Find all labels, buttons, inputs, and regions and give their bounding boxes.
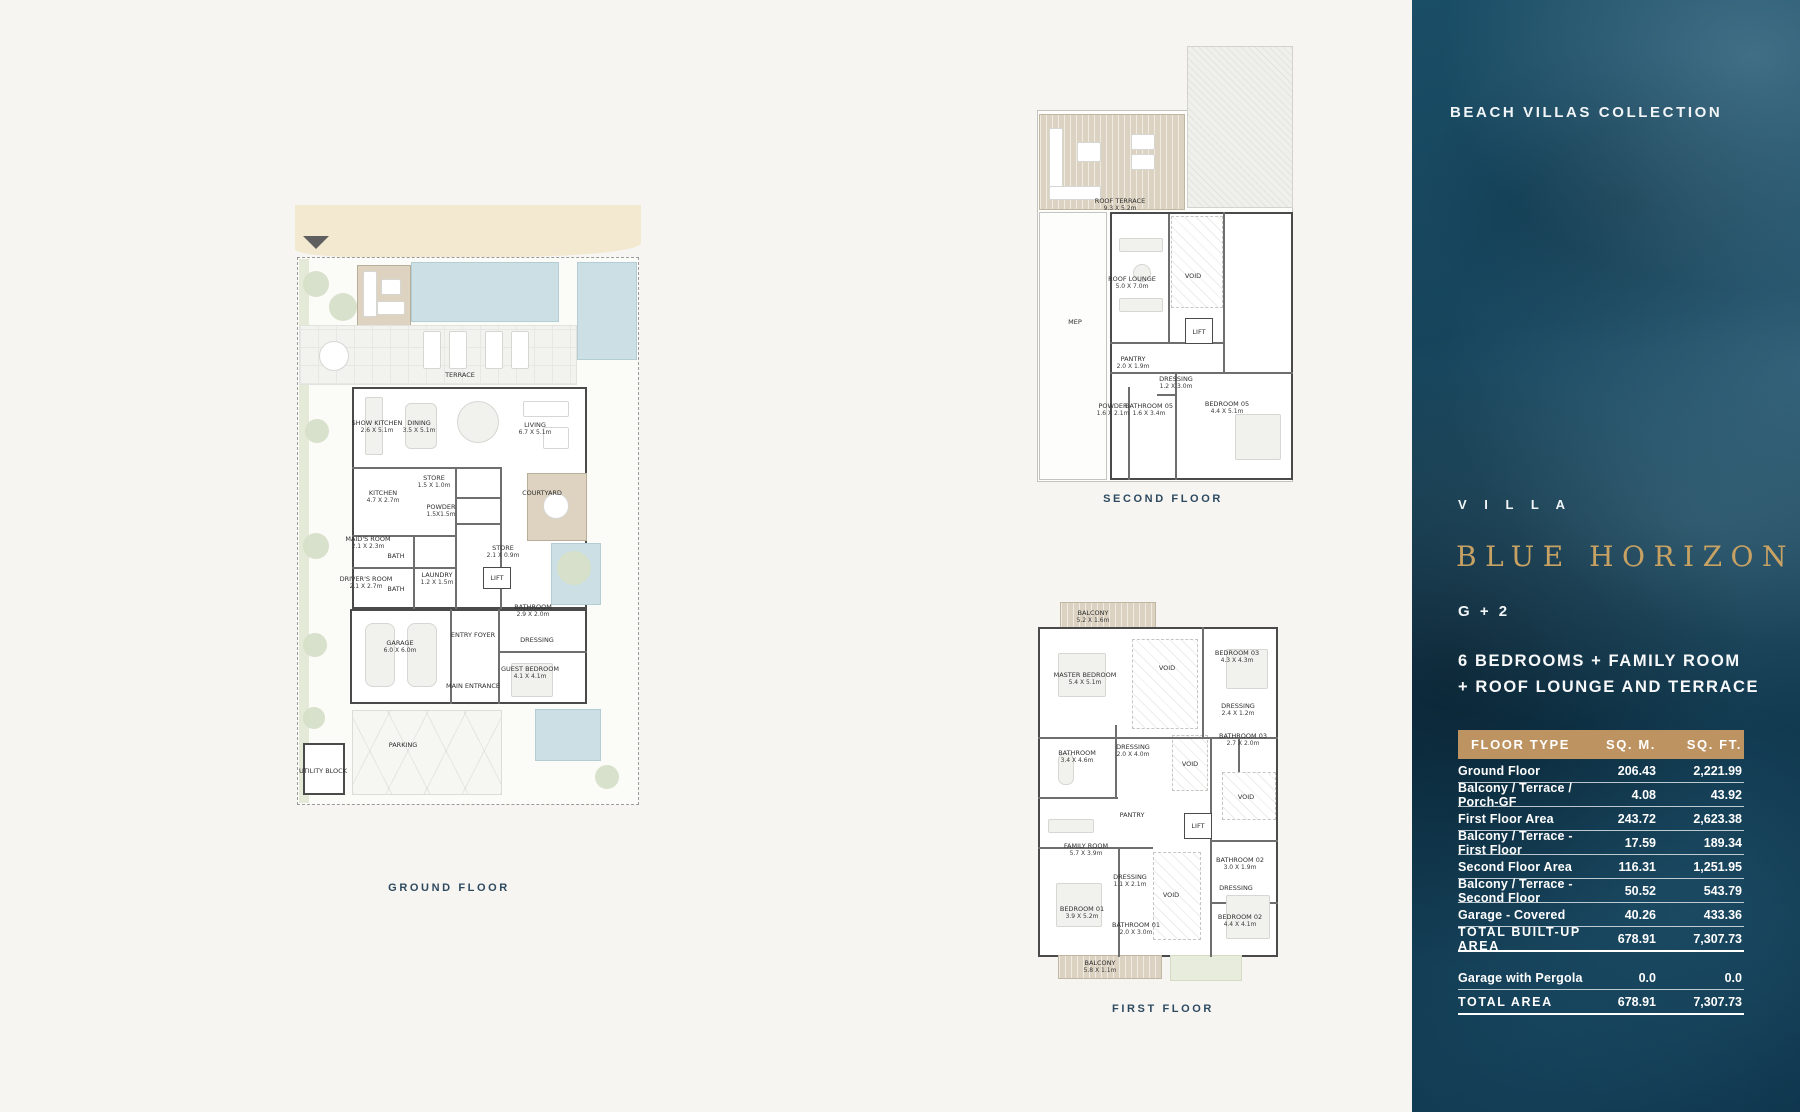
gravel-roof — [1187, 46, 1293, 208]
table-cell: 40.26 — [1586, 908, 1656, 922]
header-sqft: SQ. FT. — [1656, 737, 1744, 752]
room-label: FAMILY ROOM5.7 X 3.9m — [1064, 842, 1108, 858]
room-label: LIVING6.7 X 5.1m — [519, 421, 552, 437]
sun-lounger — [511, 331, 529, 369]
room-label: GUEST BEDROOM4.1 X 4.1m — [501, 665, 559, 681]
wall — [1210, 737, 1212, 957]
void-area — [1171, 216, 1223, 308]
rug — [457, 401, 499, 443]
tree — [305, 419, 329, 443]
table-row: Garage with Pergola0.00.0 — [1458, 966, 1744, 990]
room-label: LIFT — [490, 574, 503, 582]
terrace-chair — [1131, 154, 1155, 170]
beach-access-marker — [303, 236, 329, 249]
wall — [413, 535, 415, 609]
villa-name: BLUE HORIZON — [1456, 540, 1795, 573]
wall — [1118, 847, 1120, 957]
table-cell: Garage - Covered — [1458, 908, 1586, 922]
room-label: COURTYARD — [522, 489, 562, 497]
room-label: PARKING — [389, 741, 418, 749]
room-label: BEDROOM 054.4 X 5.1m — [1205, 400, 1249, 416]
parking-area — [352, 710, 502, 795]
room-label: DRESSING2.0 X 4.0m — [1116, 743, 1150, 759]
swimming-pool — [577, 262, 637, 360]
car — [407, 623, 437, 687]
sun-lounger — [485, 331, 503, 369]
wall — [1210, 840, 1278, 842]
first-floor-plan: BALCONY5.2 X 1.6m MASTER BEDROOM5.4 X 5.… — [1020, 557, 1296, 981]
room-label: STORE1.5 X 1.0m — [418, 474, 451, 490]
void-area — [1132, 639, 1198, 729]
bed — [1235, 414, 1281, 460]
garden-terrace — [1170, 955, 1242, 981]
header-floor-type: FLOOR TYPE — [1458, 737, 1586, 752]
cabana-table — [381, 279, 401, 295]
room-label: DRESSING — [1219, 884, 1253, 892]
table-cell: Balcony / Terrace - First Floor — [1458, 829, 1586, 857]
tree — [303, 707, 325, 729]
room-label: DRESSING2.4 X 1.2m — [1221, 702, 1255, 718]
room-label: UTILITY BLOCK — [299, 767, 347, 775]
table-cell: TOTAL AREA — [1458, 995, 1586, 1009]
sun-lounger — [449, 331, 467, 369]
room-label: VOID — [1159, 664, 1175, 672]
table-cell: First Floor Area — [1458, 812, 1586, 826]
tree — [595, 765, 619, 789]
table-cell: Balcony / Terrace - Second Floor — [1458, 877, 1586, 905]
storeys-label: G + 2 — [1458, 603, 1510, 620]
wall — [1038, 797, 1118, 799]
room-label: BEDROOM 013.9 X 5.2m — [1060, 905, 1104, 921]
area-table-header: FLOOR TYPE SQ. M. SQ. FT. — [1458, 730, 1744, 759]
area-table: FLOOR TYPE SQ. M. SQ. FT. Ground Floor20… — [1458, 730, 1744, 1015]
room-label: GARAGE6.0 X 6.0m — [384, 639, 417, 655]
ground-floor-caption: GROUND FLOOR — [388, 882, 510, 894]
room-label: BATH — [387, 585, 404, 593]
table-cell: 243.72 — [1586, 812, 1656, 826]
table-cell: 543.79 — [1656, 884, 1744, 898]
lounge-sofa — [1119, 238, 1163, 252]
room-label: BATH — [387, 552, 404, 560]
room-label: MEP — [1068, 318, 1082, 326]
room-label: SHOW KITCHEN2.6 X 5.1m — [352, 419, 403, 435]
table-cell: 2,221.99 — [1656, 764, 1744, 778]
room-label: VOID — [1163, 891, 1179, 899]
wall — [1110, 372, 1293, 374]
room-label: ROOF TERRACE9.3 X 5.2m — [1095, 197, 1145, 213]
room-label: LAUNDRY1.2 X 1.5m — [421, 571, 454, 587]
villa-description: 6 BEDROOMS + FAMILY ROOM + ROOF LOUNGE A… — [1458, 648, 1759, 700]
table-cell: 678.91 — [1586, 995, 1656, 1009]
terrace-table — [1077, 142, 1101, 162]
outdoor-table — [319, 341, 349, 371]
wall — [352, 467, 502, 469]
room-label: ROOF LOUNGE5.0 X 7.0m — [1108, 275, 1156, 291]
room-label: VOID — [1185, 272, 1201, 280]
room-label: LIFT — [1191, 822, 1204, 830]
table-cell: 17.59 — [1586, 836, 1656, 850]
room-label: MAID'S ROOM2.1 X 2.3m — [345, 535, 390, 551]
table-cell: Second Floor Area — [1458, 860, 1586, 874]
table-cell: 1,251.95 — [1656, 860, 1744, 874]
room-label: TERRACE — [445, 371, 475, 379]
room-label: ENTRY FOYER — [451, 631, 495, 639]
room-label: POWDER1.5X1.5m — [426, 503, 455, 519]
room-label: DRESSING1.2 X 3.0m — [1159, 375, 1193, 391]
wall — [457, 523, 502, 525]
room-label: KITCHEN4.7 X 2.7m — [367, 489, 400, 505]
room-label: VOID — [1238, 793, 1254, 801]
first-floor-caption: FIRST FLOOR — [1112, 1003, 1214, 1015]
table-cell: 7,307.73 — [1656, 932, 1744, 946]
room-label: PANTRY2.0 X 1.9m — [1117, 355, 1150, 371]
room-label: BATHROOM 012.0 X 3.0m — [1112, 921, 1160, 937]
table-cell: 678.91 — [1586, 932, 1656, 946]
tree — [303, 533, 329, 559]
second-floor-plan: ROOF TERRACE9.3 X 5.2m ROOF LOUNGE5.0 X … — [1035, 42, 1297, 486]
sofa — [1048, 819, 1094, 833]
table-cell: 116.31 — [1586, 860, 1656, 874]
wall — [455, 467, 457, 609]
table-cell: Balcony / Terrace / Porch-GF — [1458, 781, 1586, 809]
room-label: BATHROOM3.4 X 4.6m — [1058, 749, 1096, 765]
table-cell: 206.43 — [1586, 764, 1656, 778]
table-row: Balcony / Terrace - First Floor17.59189.… — [1458, 831, 1744, 855]
wall — [1115, 725, 1117, 797]
area-table-body: Ground Floor206.432,221.99Balcony / Terr… — [1458, 759, 1744, 1015]
room-label: PANTRY — [1120, 811, 1145, 819]
table-cell: 7,307.73 — [1656, 995, 1744, 1009]
room-label: BATHROOM 032.7 X 2.0m — [1219, 732, 1267, 748]
brochure-page: { "sidebar": { "collection": "BEACH VILL… — [0, 0, 1800, 1112]
collection-title: BEACH VILLAS COLLECTION — [1450, 104, 1722, 121]
table-row: Garage - Covered40.26433.36 — [1458, 903, 1744, 927]
wall — [1223, 212, 1225, 372]
info-sidebar: BEACH VILLAS COLLECTION V I L L A BLUE H… — [1412, 0, 1800, 1112]
table-row: First Floor Area243.722,623.38 — [1458, 807, 1744, 831]
table-row: TOTAL BUILT-UP AREA678.917,307.73 — [1458, 927, 1744, 952]
table-cell: 0.0 — [1586, 971, 1656, 985]
wall — [352, 567, 457, 569]
table-cell: 50.52 — [1586, 884, 1656, 898]
table-cell: 43.92 — [1656, 788, 1744, 802]
sofa — [523, 401, 569, 417]
terrace-sofa — [1049, 128, 1063, 188]
swimming-pool — [411, 262, 559, 322]
cabana-sofa — [377, 301, 405, 315]
room-label: BATHROOM 023.0 X 1.9m — [1216, 856, 1264, 872]
ground-floor-plan: TERRACE SHOW KITCHEN2.6 X 5.1m DINING3.5… — [295, 205, 641, 817]
room-label: MAIN ENTRANCE — [446, 682, 500, 690]
table-cell: 4.08 — [1586, 788, 1656, 802]
wall — [1128, 387, 1130, 480]
tree — [557, 551, 591, 585]
car — [365, 623, 395, 687]
table-cell: Ground Floor — [1458, 764, 1586, 778]
room-label: BATHROOM2.9 X 2.0m — [514, 603, 552, 619]
table-row: Second Floor Area116.311,251.95 — [1458, 855, 1744, 879]
room-label: POWDER1.6 X 2.1m — [1097, 402, 1130, 418]
table-row: TOTAL AREA678.917,307.73 — [1458, 990, 1744, 1015]
table-row: Balcony / Terrace / Porch-GF4.0843.92 — [1458, 783, 1744, 807]
terrace-sofa — [1049, 186, 1101, 200]
table-row: Ground Floor206.432,221.99 — [1458, 759, 1744, 783]
description-line-2: + ROOF LOUNGE AND TERRACE — [1458, 674, 1759, 700]
room-label: VOID — [1182, 760, 1198, 768]
room-label: BEDROOM 034.3 X 4.3m — [1215, 649, 1259, 665]
room-label: BALCONY5.2 X 1.6m — [1077, 609, 1110, 625]
second-floor-caption: SECOND FLOOR — [1103, 493, 1223, 505]
table-cell: 0.0 — [1656, 971, 1744, 985]
beach-sand — [295, 205, 641, 257]
wall — [498, 651, 587, 653]
mep-zone — [1039, 212, 1107, 480]
cabana-sofa — [363, 271, 377, 317]
room-label: STORE2.1 X 0.9m — [487, 544, 520, 560]
table-cell: TOTAL BUILT-UP AREA — [1458, 925, 1586, 953]
tree — [303, 271, 329, 297]
sun-lounger — [423, 331, 441, 369]
table-cell: 189.34 — [1656, 836, 1744, 850]
tree — [303, 633, 327, 657]
lounge-sofa — [1119, 298, 1163, 312]
room-label: BEDROOM 024.4 X 4.1m — [1218, 913, 1262, 929]
room-label: BATHROOM 051.6 X 3.4m — [1125, 402, 1173, 418]
room-label: DRESSING1.1 X 2.1m — [1113, 873, 1147, 889]
terrace-chair — [1131, 134, 1155, 150]
room-label: DRIVER'S ROOM2.1 X 2.7m — [340, 575, 393, 591]
villa-label: V I L L A — [1458, 497, 1572, 512]
room-label: DRESSING — [520, 636, 554, 644]
room-label: LIFT — [1192, 328, 1205, 336]
wall — [1157, 394, 1175, 396]
room-label: MASTER BEDROOM5.4 X 5.1m — [1054, 671, 1117, 687]
header-sqm: SQ. M. — [1586, 737, 1656, 752]
table-cell: Garage with Pergola — [1458, 971, 1586, 985]
table-cell: 2,623.38 — [1656, 812, 1744, 826]
description-line-1: 6 BEDROOMS + FAMILY ROOM — [1458, 648, 1759, 674]
table-row: Balcony / Terrace - Second Floor50.52543… — [1458, 879, 1744, 903]
wall — [457, 497, 502, 499]
tree — [329, 293, 357, 321]
wall — [1202, 627, 1204, 737]
room-label: DINING3.5 X 5.1m — [403, 419, 436, 435]
wall — [1168, 214, 1170, 344]
room-label: BALCONY5.8 X 1.1m — [1084, 959, 1117, 975]
plunge-pool — [535, 709, 601, 761]
table-cell: 433.36 — [1656, 908, 1744, 922]
